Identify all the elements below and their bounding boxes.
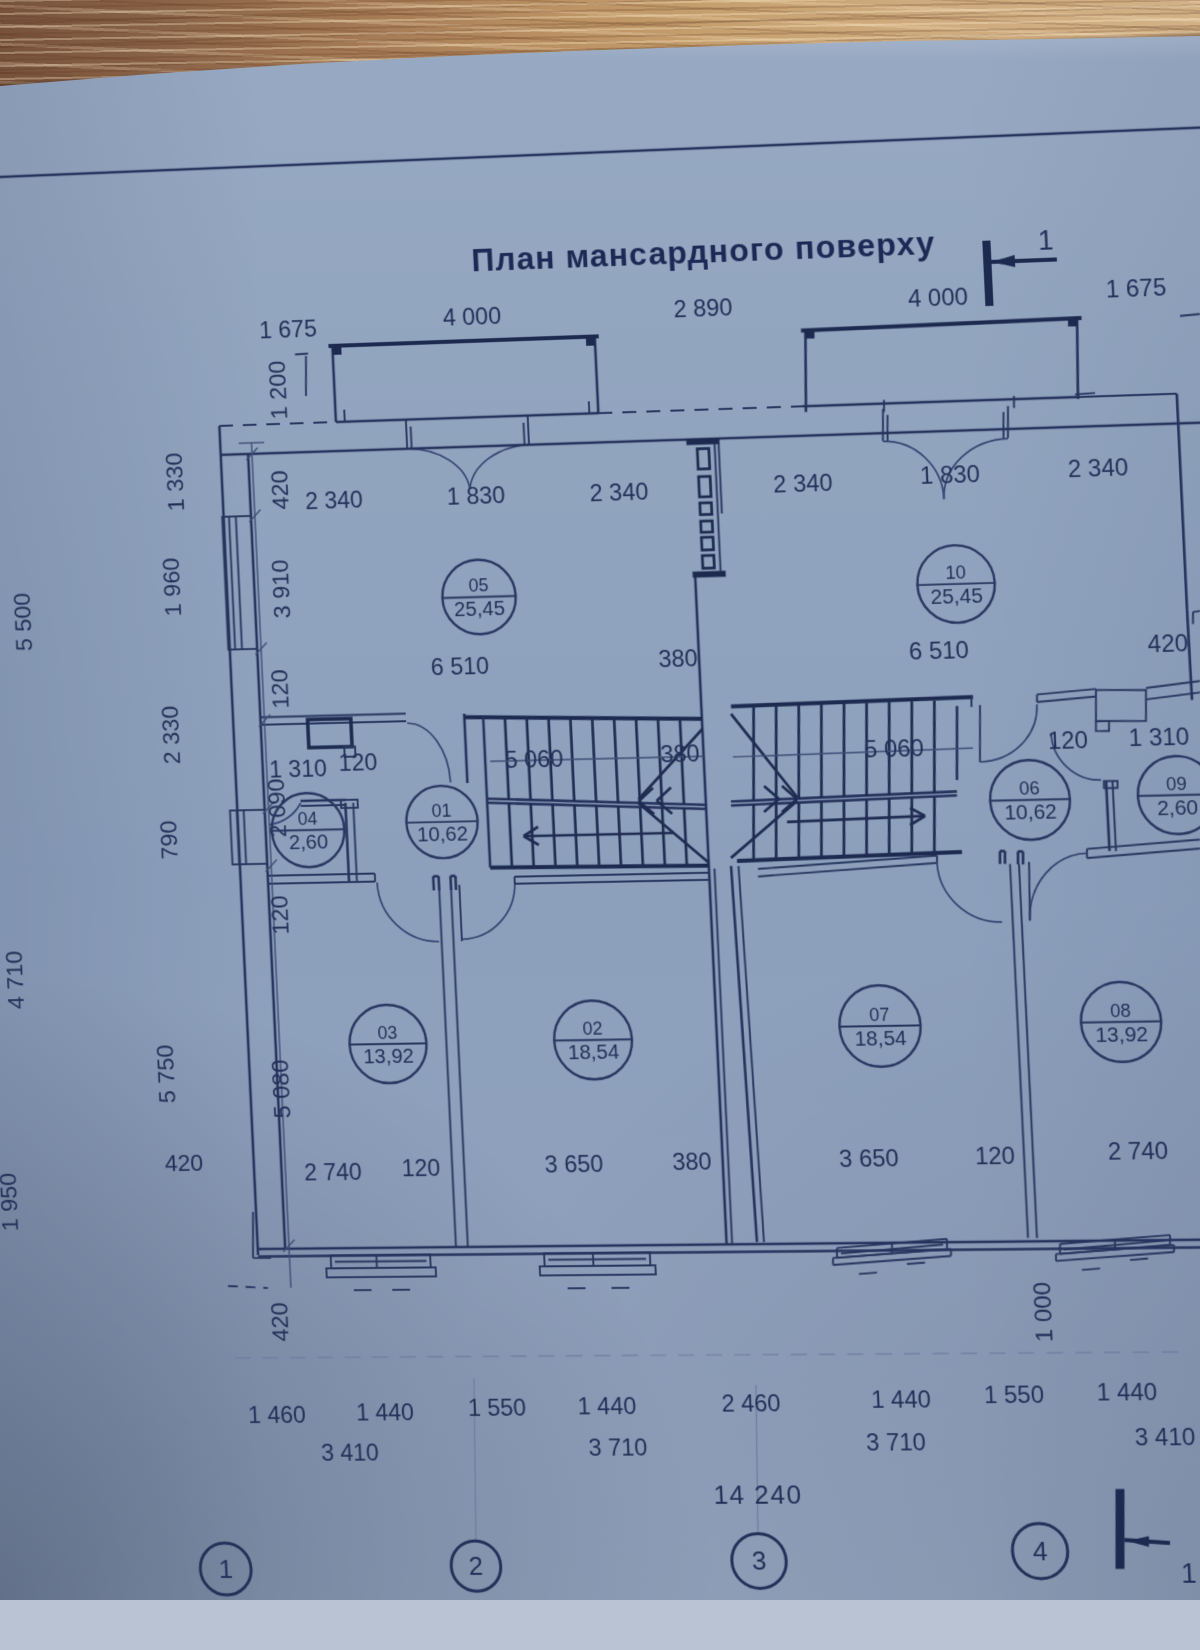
svg-text:13,92: 13,92	[1095, 1023, 1149, 1047]
svg-text:3 710: 3 710	[588, 1434, 648, 1461]
svg-text:120: 120	[266, 669, 294, 709]
svg-text:2 340: 2 340	[304, 486, 363, 514]
svg-text:09: 09	[1166, 773, 1188, 794]
svg-text:1 440: 1 440	[871, 1386, 932, 1413]
svg-text:380: 380	[660, 740, 701, 768]
svg-text:3: 3	[751, 1547, 767, 1576]
svg-text:4 710: 4 710	[1, 951, 29, 1010]
svg-text:10,62: 10,62	[417, 823, 469, 847]
svg-text:1 440: 1 440	[355, 1398, 414, 1425]
svg-text:3 910: 3 910	[266, 559, 295, 619]
svg-text:05: 05	[468, 575, 489, 596]
svg-text:420: 420	[266, 1302, 294, 1341]
svg-text:4: 4	[1032, 1537, 1048, 1566]
svg-text:25,45: 25,45	[454, 598, 506, 622]
svg-text:01: 01	[431, 800, 452, 821]
svg-text:1 830: 1 830	[919, 460, 980, 489]
svg-text:5 750: 5 750	[152, 1044, 181, 1103]
svg-text:1 675: 1 675	[1105, 273, 1167, 302]
svg-text:1: 1	[1037, 225, 1054, 257]
svg-text:6 510: 6 510	[430, 653, 489, 681]
svg-text:420: 420	[164, 1149, 203, 1176]
svg-text:2 890: 2 890	[673, 293, 733, 322]
svg-text:13,92: 13,92	[363, 1045, 415, 1068]
svg-text:02: 02	[582, 1018, 603, 1039]
svg-text:10,62: 10,62	[1004, 801, 1058, 825]
svg-text:5 060: 5 060	[504, 745, 564, 773]
svg-text:2: 2	[468, 1552, 484, 1581]
svg-text:3 410: 3 410	[1134, 1423, 1196, 1450]
svg-text:420: 420	[266, 470, 294, 510]
svg-text:120: 120	[338, 749, 378, 777]
svg-text:380: 380	[658, 645, 699, 673]
svg-text:1 440: 1 440	[577, 1392, 637, 1419]
svg-text:6 510: 6 510	[908, 636, 969, 665]
svg-text:380: 380	[672, 1148, 713, 1175]
svg-text:07: 07	[869, 1004, 890, 1025]
svg-text:4 000: 4 000	[907, 283, 968, 312]
svg-text:План мансардного поверху: План мансардного поверху	[470, 225, 936, 279]
svg-text:2,60: 2,60	[1157, 796, 1199, 820]
svg-text:18,54: 18,54	[568, 1041, 620, 1064]
svg-text:5 080: 5 080	[267, 1059, 296, 1118]
svg-text:4 000: 4 000	[442, 302, 501, 331]
svg-text:14 240: 14 240	[713, 1481, 803, 1510]
svg-text:3 710: 3 710	[866, 1428, 927, 1455]
svg-text:1 460: 1 460	[248, 1401, 307, 1428]
svg-text:03: 03	[377, 1022, 398, 1043]
svg-text:3 650: 3 650	[544, 1150, 604, 1177]
svg-text:1: 1	[1180, 1558, 1197, 1589]
svg-text:2 340: 2 340	[1067, 453, 1129, 482]
svg-text:1 330: 1 330	[161, 452, 190, 511]
svg-text:120: 120	[974, 1142, 1015, 1170]
svg-text:1: 1	[218, 1556, 233, 1585]
svg-text:1 200: 1 200	[263, 360, 292, 420]
svg-text:420: 420	[1147, 630, 1189, 658]
svg-text:08: 08	[1110, 1000, 1132, 1021]
svg-text:1 440: 1 440	[1096, 1378, 1158, 1406]
svg-text:18,54: 18,54	[854, 1027, 907, 1051]
svg-text:1 310: 1 310	[1128, 722, 1190, 751]
svg-text:2,60: 2,60	[289, 831, 329, 854]
svg-text:1 675: 1 675	[259, 315, 318, 344]
svg-text:2 460: 2 460	[721, 1389, 781, 1416]
svg-text:1 550: 1 550	[467, 1394, 527, 1421]
svg-text:120: 120	[266, 895, 294, 935]
svg-text:3 650: 3 650	[839, 1145, 900, 1173]
svg-text:1 950: 1 950	[0, 1173, 23, 1232]
svg-text:06: 06	[1019, 778, 1041, 799]
svg-text:2 740: 2 740	[1107, 1137, 1169, 1165]
svg-text:04: 04	[297, 808, 318, 829]
svg-text:1 000: 1 000	[1028, 1282, 1058, 1342]
svg-text:5 060: 5 060	[863, 735, 924, 763]
svg-text:2 740: 2 740	[303, 1158, 362, 1185]
svg-text:10: 10	[945, 562, 967, 583]
svg-text:1 830: 1 830	[446, 482, 505, 511]
svg-text:120: 120	[1047, 727, 1088, 755]
svg-text:1 960: 1 960	[158, 557, 187, 616]
svg-text:2 330: 2 330	[157, 705, 186, 764]
svg-text:2 340: 2 340	[773, 469, 834, 498]
svg-text:5 500: 5 500	[9, 592, 37, 651]
svg-text:2 340: 2 340	[589, 477, 649, 506]
svg-text:25,45: 25,45	[930, 585, 983, 609]
svg-text:1 550: 1 550	[983, 1381, 1044, 1408]
svg-text:3 410: 3 410	[320, 1439, 379, 1466]
svg-text:120: 120	[401, 1154, 441, 1181]
svg-text:790: 790	[155, 820, 183, 860]
svg-text:1 310: 1 310	[269, 755, 328, 783]
